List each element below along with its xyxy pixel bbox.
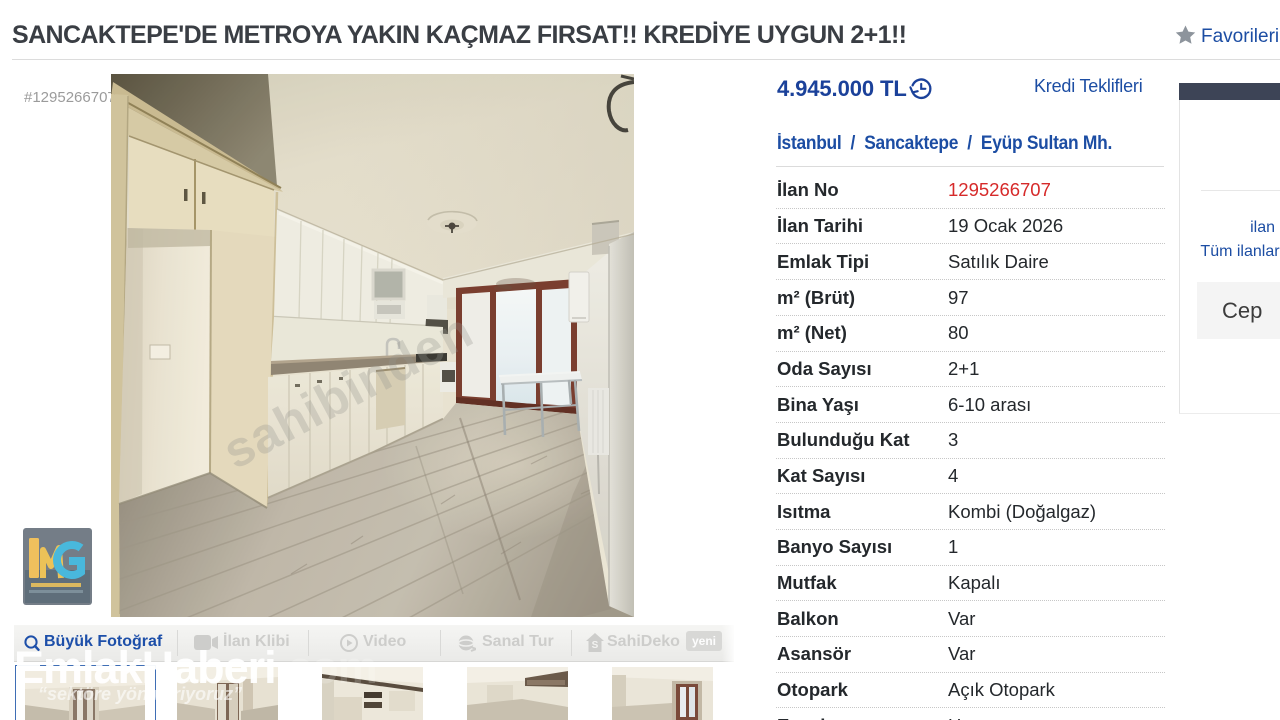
svg-text:S: S [592,640,599,651]
